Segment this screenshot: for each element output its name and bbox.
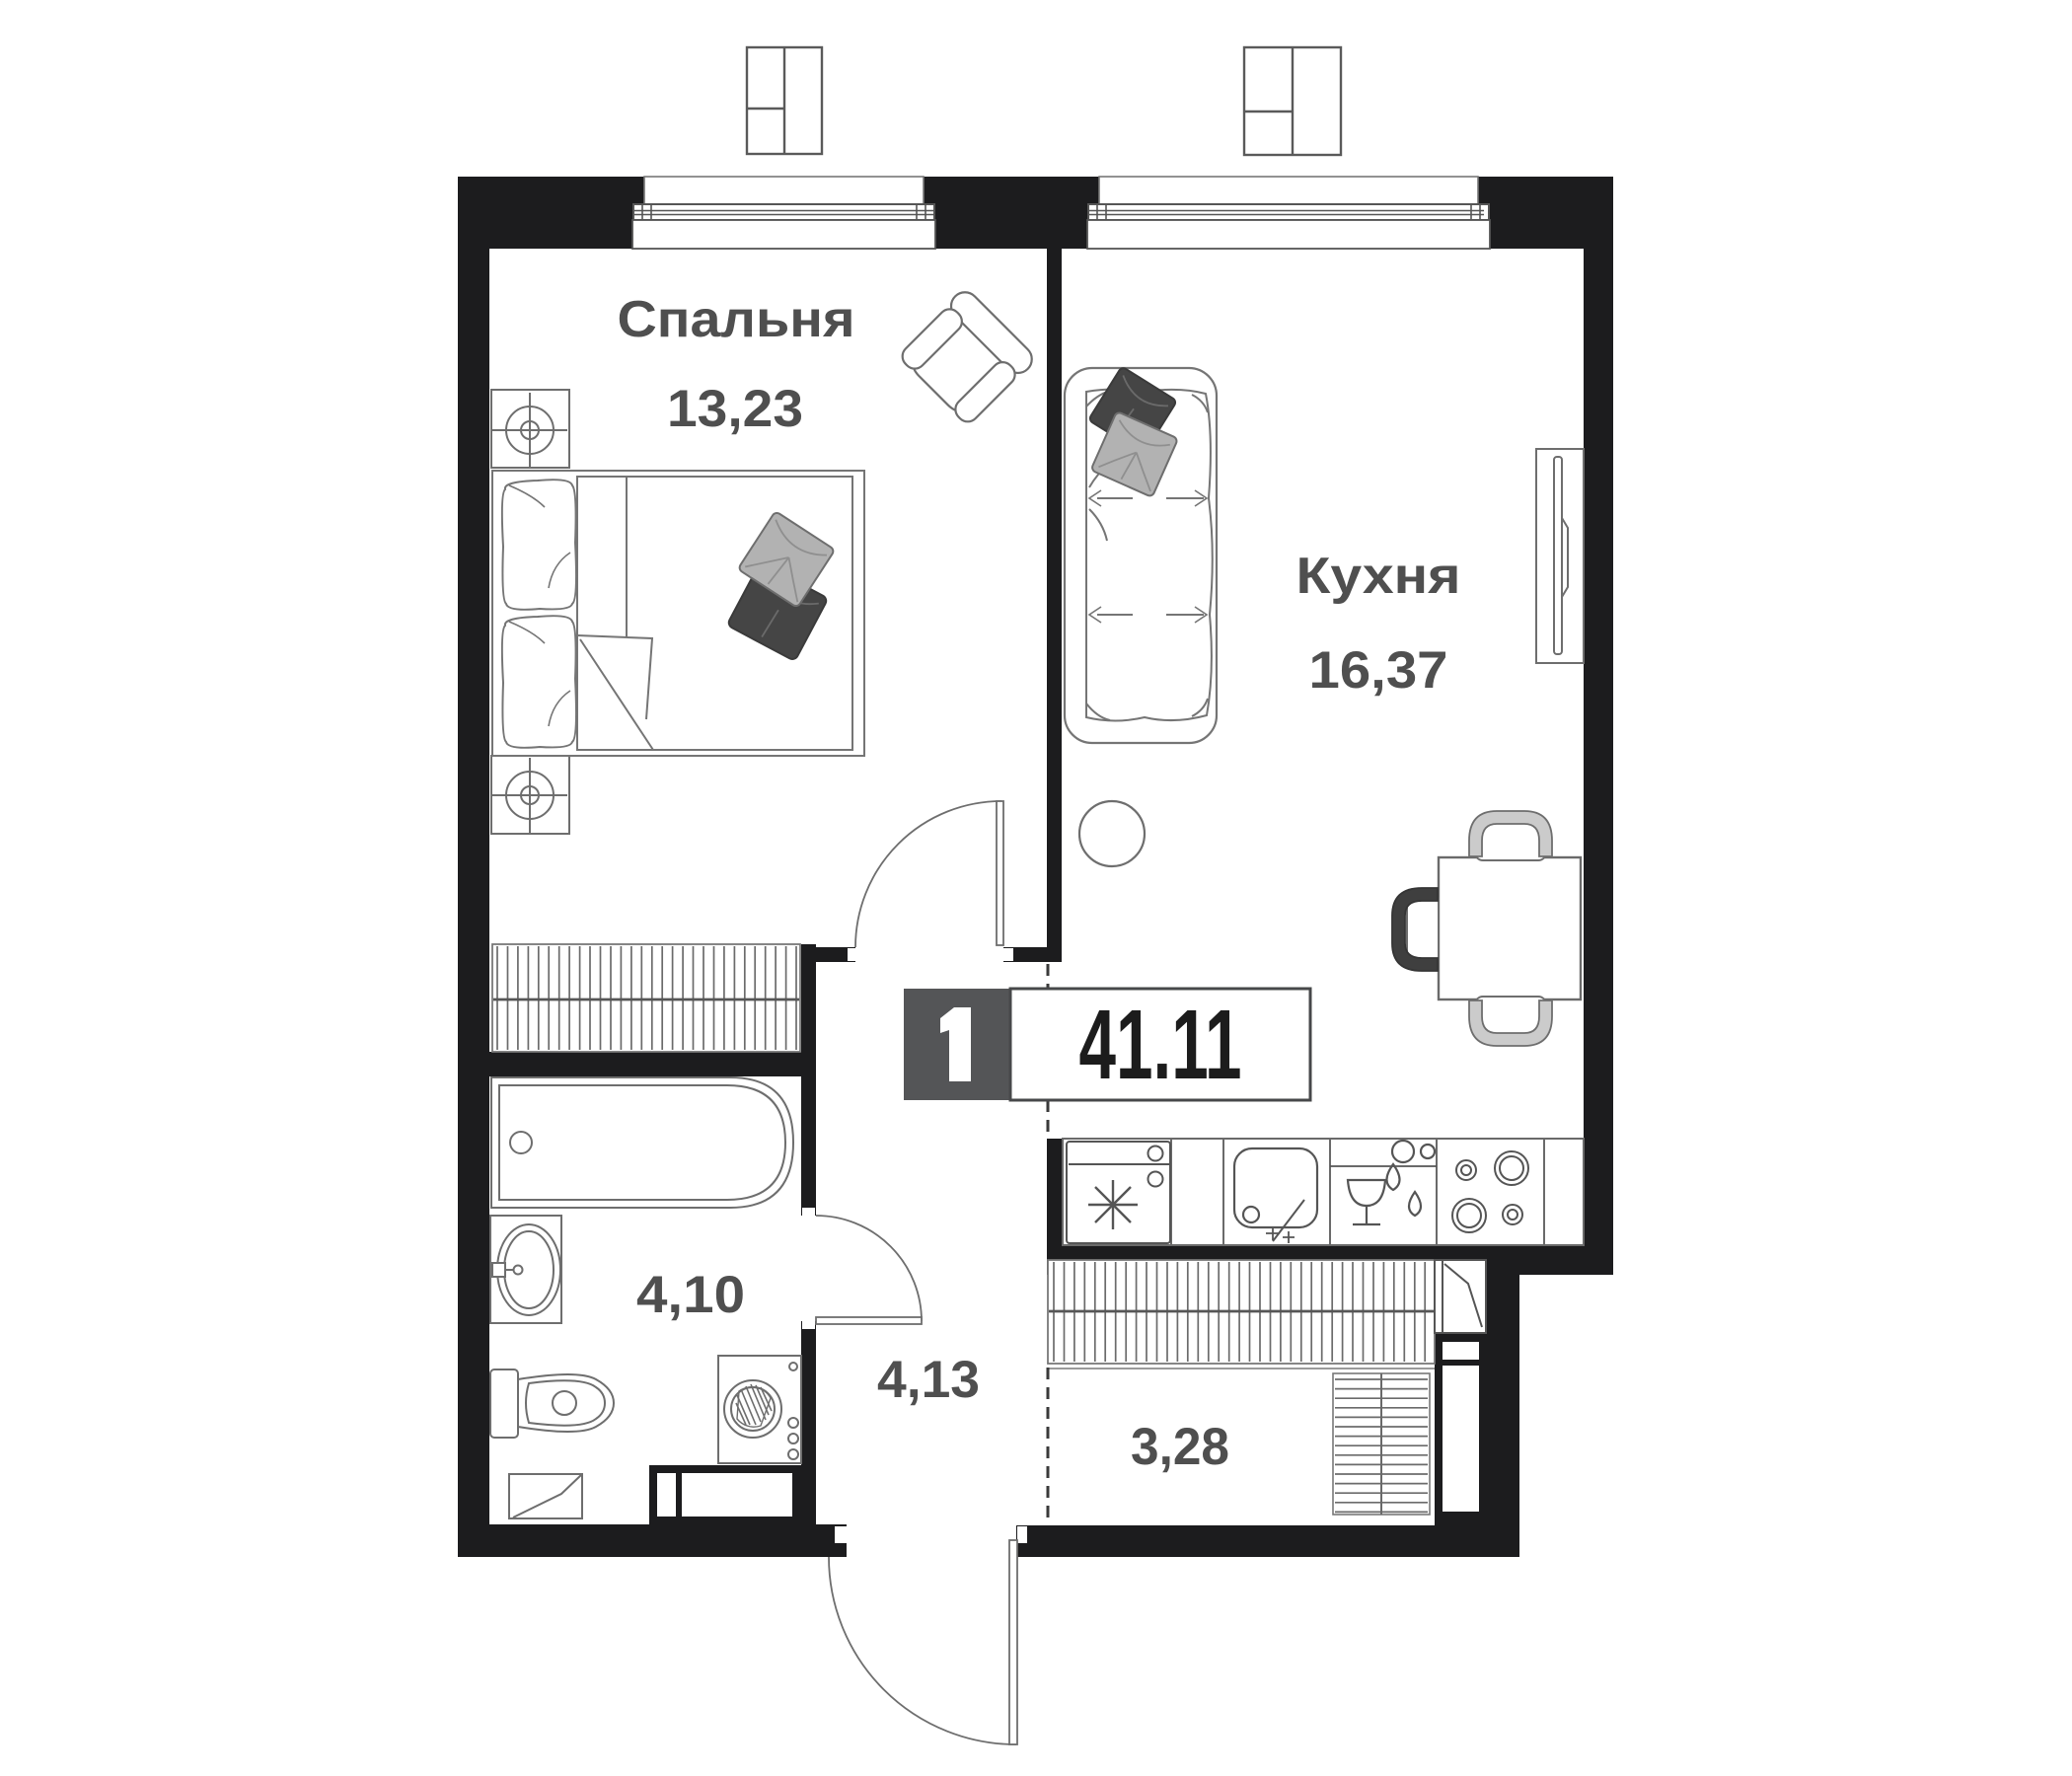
svg-text:16,37: 16,37 (1309, 641, 1448, 700)
svg-text:4,10: 4,10 (636, 1266, 745, 1324)
svg-text:Кухня: Кухня (1296, 548, 1461, 605)
svg-text:Спальня: Спальня (618, 291, 855, 348)
svg-text:13,23: 13,23 (667, 380, 803, 438)
svg-text:41.11: 41.11 (1079, 990, 1242, 1100)
svg-text:3,28: 3,28 (1131, 1418, 1229, 1476)
svg-text:4,13: 4,13 (877, 1351, 980, 1409)
